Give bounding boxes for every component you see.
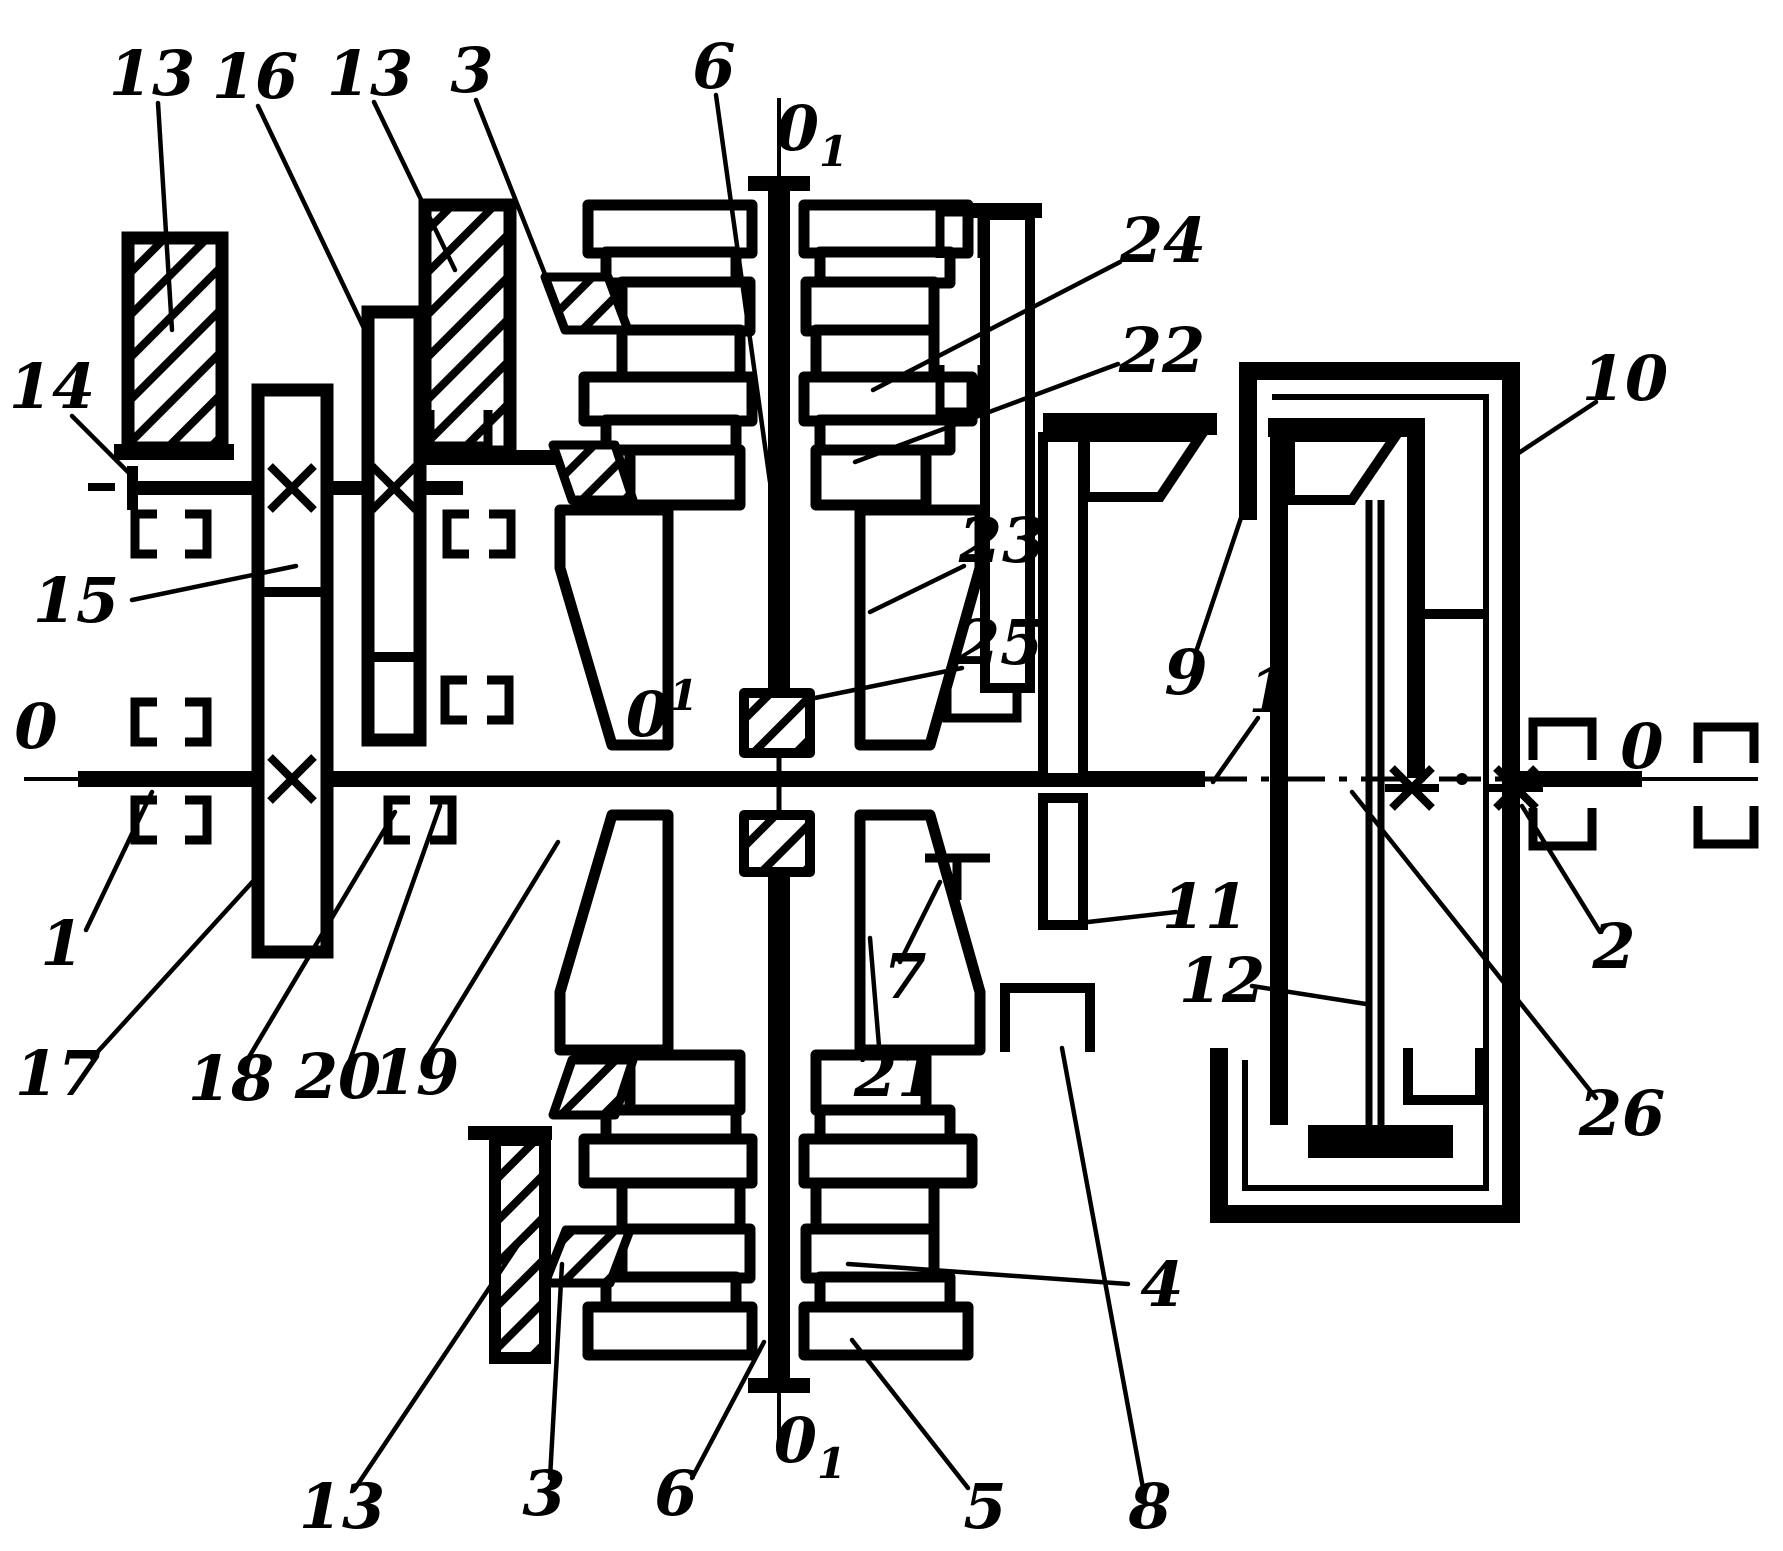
pivot-block-25-upper (744, 693, 810, 753)
gear-tooth (584, 377, 752, 421)
wall-13-bottom (495, 1140, 545, 1358)
label-16: 16 (212, 40, 298, 113)
flange-7-lower (1043, 798, 1083, 925)
label-0-center: 01 (626, 671, 698, 751)
gear-window (622, 330, 740, 377)
ring-insert-3-upper-a (545, 277, 628, 330)
label-18: 18 (188, 1042, 274, 1115)
input-shaft-1 (78, 771, 1205, 787)
label-0-left: 0 (14, 690, 57, 763)
gear-tooth (804, 1139, 972, 1183)
planet-shaft-6-top-cap (748, 176, 810, 191)
label-25: 25 (956, 606, 1043, 679)
ring-insert-3-lower-a (553, 1060, 633, 1115)
gear-tooth-5 (804, 1307, 968, 1355)
gear-window (622, 1183, 740, 1230)
leader-line-8 (1062, 1048, 1143, 1488)
leader-line-13-bottom (354, 1242, 520, 1490)
axis-dot (1456, 773, 1468, 785)
label-1-right: 1 (1248, 654, 1291, 727)
carrier-window (1290, 437, 1395, 500)
label-O1-top: 01 (776, 92, 848, 176)
label-13-bottom: 13 (299, 1470, 385, 1543)
coupling-out-b2 (1698, 806, 1754, 844)
drum-bottom-bracket (1408, 1048, 1480, 1100)
label-9: 9 (1164, 636, 1207, 709)
gear-tooth (584, 1139, 752, 1183)
carrier-left-leg-11 (1270, 437, 1288, 1125)
label-14: 14 (9, 350, 95, 423)
label-26: 26 (1578, 1077, 1665, 1150)
gear-window (630, 450, 740, 505)
label-1-left: 1 (40, 907, 83, 980)
gear-window (622, 1229, 750, 1278)
ring-insert-3-lower-b (545, 1230, 630, 1283)
leader-line-3-bottom (550, 1264, 562, 1478)
coupling-out-a1 (1533, 722, 1592, 760)
drawing-page: 1316133601242210141523250191001217182019… (0, 0, 1783, 1551)
leader-line-5 (852, 1340, 968, 1488)
gear-column-16 (368, 312, 420, 740)
coupling-pair (135, 702, 207, 742)
leader-line-17 (92, 878, 256, 1058)
carrier-right-leg (1407, 437, 1425, 778)
label-6-top: 6 (692, 30, 735, 103)
planet-shaft-6-bottom-cap (748, 1378, 810, 1393)
label-13-top-left: 13 (109, 37, 195, 110)
gear-column-15-17 (258, 390, 327, 952)
coupling-out-b1 (1698, 727, 1754, 763)
label-7: 7 (883, 940, 926, 1013)
planet-shaft-6-lower (768, 872, 790, 1379)
wall-13-center (425, 205, 510, 452)
label-12: 12 (1179, 944, 1265, 1017)
label-23: 23 (958, 504, 1045, 577)
label-24: 24 (1119, 204, 1206, 277)
label-17: 17 (15, 1037, 101, 1110)
label-20: 20 (294, 1040, 381, 1113)
leader-line-16 (258, 106, 372, 345)
carrier-foot-bar (1308, 1125, 1453, 1158)
label-11: 11 (1162, 870, 1248, 943)
label-15: 15 (33, 564, 119, 637)
pivot-block-25-lower (744, 815, 810, 872)
label-3-bottom: 3 (522, 1457, 565, 1530)
coupling-pair (445, 680, 509, 720)
left-gear-train (258, 312, 420, 952)
gear-tooth (588, 205, 752, 253)
label-19: 19 (373, 1036, 459, 1109)
gear-window (630, 1055, 740, 1110)
flange-7-upper (1043, 437, 1083, 778)
label-21: 21 (853, 1038, 940, 1111)
leader-line-9 (1196, 500, 1247, 652)
leader-line-26 (1352, 792, 1596, 1098)
coupling-pair (447, 514, 511, 554)
label-3-top: 3 (450, 34, 493, 107)
wall-13-bottom-cap (468, 1126, 552, 1140)
flange-7-top-bar (1043, 413, 1217, 435)
coupling-pair (135, 514, 207, 554)
leader-line-1-right (1213, 718, 1258, 782)
upper-right-gear-stack (804, 205, 980, 745)
gear-window (622, 282, 750, 331)
label-13-top-mid: 13 (327, 37, 413, 110)
leader-line-6-bottom (692, 1342, 764, 1478)
label-10: 10 (1582, 342, 1668, 415)
label-4: 4 (1140, 1248, 1183, 1321)
wall-13-left-base (114, 444, 234, 460)
label-2: 2 (1591, 910, 1635, 983)
gear-transmission-diagram: 1316133601242210141523250191001217182019… (0, 0, 1783, 1551)
leader-line-12 (1252, 986, 1366, 1004)
leader-line-13-top-mid (374, 102, 455, 270)
flange-7-window (1085, 437, 1200, 497)
leader-line-19 (428, 842, 558, 1055)
wall-13-left (128, 238, 222, 448)
planet-shaft-6-upper (768, 191, 790, 693)
label-5: 5 (963, 1470, 1006, 1543)
ring-insert-3-upper-b (553, 445, 633, 500)
gear-window (806, 282, 934, 331)
label-8: 8 (1127, 1470, 1171, 1543)
gear-window (816, 1183, 934, 1230)
gear-hub-funnel-19 (560, 815, 668, 1050)
bracket-8 (1005, 988, 1090, 1052)
coupling-pair (388, 800, 452, 840)
gear-tooth (588, 1307, 752, 1355)
label-0-right: 0 (1620, 710, 1663, 783)
leader-line-1-left (86, 792, 152, 930)
label-O1-bottom: 01 (774, 1404, 846, 1488)
label-6-bottom: 6 (654, 1457, 697, 1530)
right-assembly (925, 203, 1511, 1214)
drum-housing-10 (1219, 371, 1511, 1214)
label-22: 22 (1118, 314, 1205, 387)
